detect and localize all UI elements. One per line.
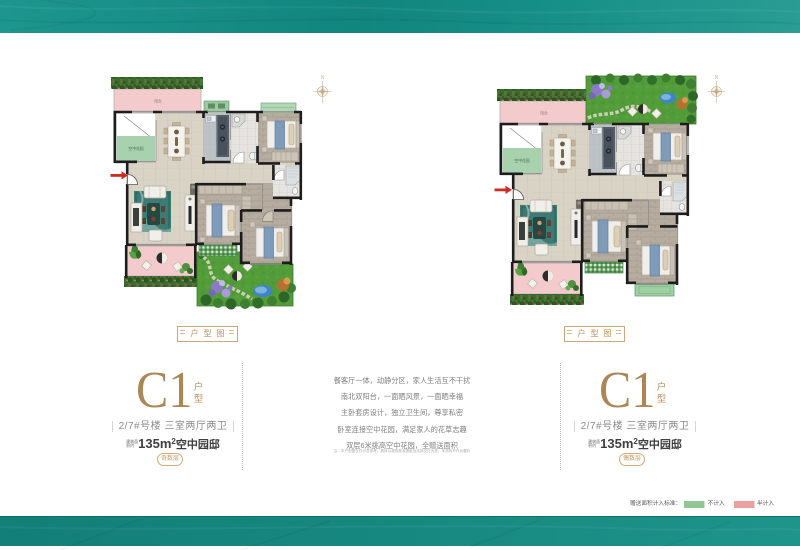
svg-text:空中花园: 空中花园 xyxy=(514,158,529,163)
svg-text:空中花园: 空中花园 xyxy=(128,146,143,151)
svg-text:N: N xyxy=(715,76,719,81)
svg-text:N: N xyxy=(321,76,325,81)
svg-text:阳台: 阳台 xyxy=(540,111,548,116)
svg-text:阳台: 阳台 xyxy=(154,99,162,104)
